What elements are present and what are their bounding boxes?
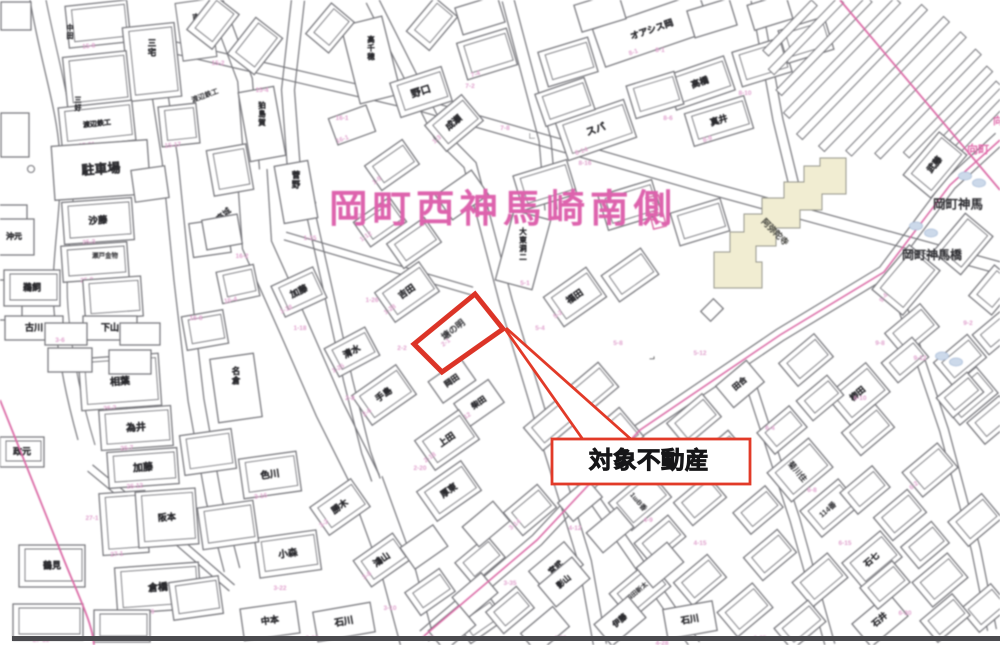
svg-text:対象不動産: 対象不動産 [589, 446, 709, 473]
